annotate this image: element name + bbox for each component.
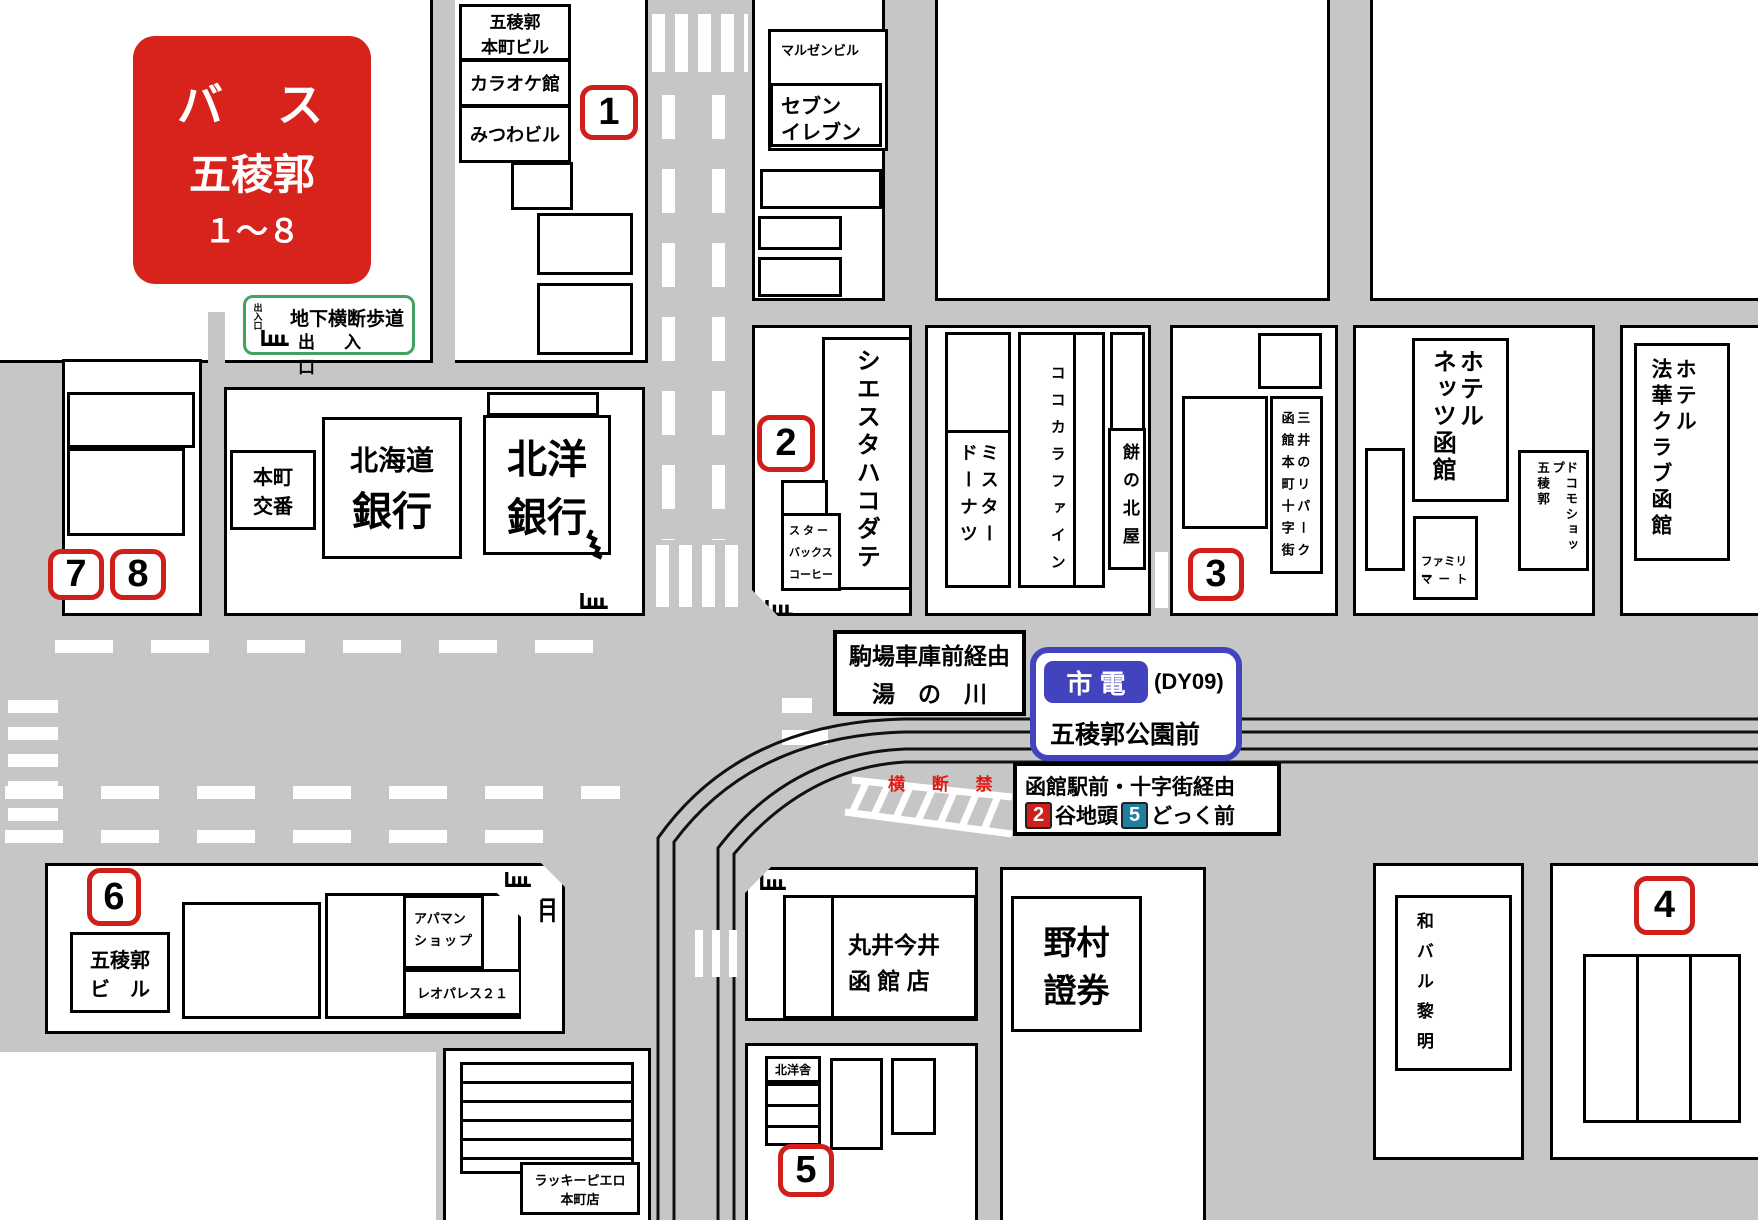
block-bottom-left <box>0 1052 436 1220</box>
building-apaman-shop: アパマン ショップ <box>403 895 484 969</box>
tram-stop-name: 五稜郭公園前 <box>1050 715 1200 751</box>
dest-dokumae: どっく前 <box>1151 800 1235 830</box>
block-hokuyosha: 北洋舎 <box>745 1043 978 1220</box>
building-goryokaku-honcho: 五稜郭 本町ビル <box>459 4 571 61</box>
yunokawa-direction-sign: 駒場車庫前経由 湯 の 川 <box>833 630 1026 716</box>
hakodate-direction-sign: 函館駅前・十字街経由 2 谷地頭 5 どっく前 <box>1013 762 1281 836</box>
building-unlabeled <box>1258 333 1322 389</box>
yunokawa-line1: 駒場車庫前経由 <box>849 637 1010 671</box>
block-banks: 本町 交番 北海道 銀行 北洋 銀行 <box>224 387 645 616</box>
tram-badge: 市 電 <box>1044 661 1148 703</box>
building-unlabeled <box>487 392 599 416</box>
maruzen-label: マルゼンビル <box>781 40 859 59</box>
bus-stop-7: 7 <box>48 549 104 600</box>
crosswalk-south-road <box>695 930 745 977</box>
block-maruzen: マルゼンビル セブン イレブン <box>752 0 885 301</box>
building-unlabeled <box>67 392 195 448</box>
route-2-badge: 2 <box>1025 802 1052 829</box>
building-mitsuwa: みつわビル <box>459 105 571 163</box>
bus-stop-6: 6 <box>87 868 141 926</box>
entrance-gate-icon <box>540 898 555 924</box>
tram-stop-sign: 市 電 (DY09) 五稜郭公園前 <box>1030 647 1242 761</box>
building-familymart: ファミリー マート <box>1413 516 1478 600</box>
block-wabaru: 和バル黎明 <box>1373 863 1524 1160</box>
building-rows <box>765 1083 821 1146</box>
building-cocokara-fine: ココカラファイン <box>1018 332 1076 588</box>
building-docomo-shop: ドコモショップ 五稜郭 <box>1518 450 1589 571</box>
bus-sign-line2: 五稜郭 <box>189 141 315 202</box>
hakodate-line1: 函館駅前・十字街経由 <box>1025 771 1235 801</box>
building-hotel-nets: ホテル ネッツ函館 <box>1412 338 1509 502</box>
building-unlabeled <box>1073 332 1105 588</box>
building-mister-donut: ミスター ドーナツ <box>945 430 1011 588</box>
building-hokuyosha: 北洋舎 <box>765 1056 821 1083</box>
stairs-icon <box>760 875 786 890</box>
building-seven-eleven: セブン イレブン <box>770 83 882 147</box>
block-northeast-b <box>1370 0 1758 301</box>
marui-divider <box>831 898 834 1016</box>
building-apaman-outer: アパマン ショップ レオパレス２１ <box>325 893 521 1019</box>
building-hotel-hokke-club: ホテル 法華クラブ函館 <box>1634 343 1730 561</box>
block-hotel-hokke: ホテル 法華クラブ函館 <box>1620 325 1758 616</box>
building-maruzen: マルゼンビル セブン イレブン <box>768 29 888 151</box>
bay-divider <box>1689 957 1692 1120</box>
bus-stop-8: 8 <box>110 549 166 600</box>
building-leopalace21: レオパレス２１ <box>403 969 522 1016</box>
yunokawa-line2: 湯 の 川 <box>872 675 987 709</box>
bus-area-sign: バ ス 五稜郭 １～８ <box>133 36 371 284</box>
block-lucky-pierrot: ラッキーピエロ 本町店 <box>443 1048 651 1220</box>
bus-sign-line1: バ ス <box>177 69 327 135</box>
building-unlabeled <box>891 1058 936 1135</box>
underpass-entrance-sign: 出入口 地下横断歩道 出 入 口 <box>243 295 415 355</box>
block-northwest: バ ス 五稜郭 １～８ 出入口 地下横断歩道 出 入 口 <box>0 0 433 363</box>
side-street-notch <box>208 312 225 364</box>
bus-stop-5: 5 <box>778 1144 834 1197</box>
hakodate-line2: 2 谷地頭 5 どっく前 <box>1025 800 1235 830</box>
route-5-badge: 5 <box>1121 802 1148 829</box>
building-hokkaido-bank: 北海道 銀行 <box>322 417 462 559</box>
building-three-bay <box>1583 954 1741 1123</box>
building-mochi-no-kitaya: 餅の北屋 <box>1108 428 1146 570</box>
block-marui-imai: 丸井今井 函 館 店 <box>745 867 978 1021</box>
building-unlabeled <box>1110 332 1145 433</box>
underpass-sign-subtitle: 出 入 口 <box>298 328 412 378</box>
building-unlabeled <box>758 216 842 250</box>
parking-mitsui-repark: 三井のリパーク 函館本町十字街 <box>1270 396 1323 574</box>
block-hotel-nets: ホテル ネッツ函館 ファミリー マート ドコモショップ 五稜郭 <box>1353 325 1595 616</box>
bus-stop-3: 3 <box>1188 548 1244 601</box>
building-unlabeled <box>760 169 882 209</box>
underpass-sign-title: 地下横断歩道 <box>290 304 404 331</box>
dest-yachigashira: 谷地頭 <box>1055 800 1118 830</box>
building-unlabeled <box>67 448 185 536</box>
stairs-icon <box>580 593 608 609</box>
goryokaku-bus-map: バ ス 五稜郭 １～８ 出入口 地下横断歩道 出 入 口 五稜郭 本町ビル カラ… <box>0 0 1758 1220</box>
building-unlabeled <box>758 257 842 297</box>
building-unlabeled <box>182 902 321 1019</box>
bus-stop-4: 4 <box>1634 876 1695 935</box>
building-unlabeled <box>1365 448 1405 571</box>
tram-code: (DY09) <box>1154 669 1224 695</box>
building-karaoke-kan: カラオケ館 <box>459 59 571 107</box>
building-marui-imai: 丸井今井 函 館 店 <box>783 895 977 1019</box>
bus-sign-line3: １～８ <box>204 206 300 252</box>
building-lucky-pierrot: ラッキーピエロ 本町店 <box>520 1162 640 1215</box>
block-honcho-stack: 五稜郭 本町ビル カラオケ館 みつわビル <box>455 0 648 363</box>
underpass-sign-side-label: 出入口 <box>250 303 263 330</box>
building-unlabeled <box>830 1058 883 1150</box>
building-honcho-koban: 本町 交番 <box>230 450 316 530</box>
siesta-label: シエスタハコダテ <box>851 348 880 586</box>
building-unlabeled <box>537 283 633 355</box>
building-starbucks: スター バックス コーヒー <box>781 513 841 591</box>
building-nomura-securities: 野村 證券 <box>1011 896 1142 1032</box>
building-unlabeled <box>537 213 633 275</box>
bus-stop-1: 1 <box>580 85 638 140</box>
bus-stop-2: 2 <box>757 415 815 472</box>
stairs-icon <box>260 330 290 346</box>
building-unlabeled <box>945 332 1011 435</box>
block-northeast-a <box>935 0 1330 301</box>
building-goryokaku-bldg: 五稜郭 ビ ル <box>70 932 170 1013</box>
building-unlabeled <box>1182 396 1268 529</box>
building-striped <box>460 1062 634 1174</box>
building-unlabeled <box>511 162 573 210</box>
block-nomura: 野村 證券 <box>1000 867 1206 1220</box>
building-wabaru-reimei: 和バル黎明 <box>1395 895 1512 1071</box>
block-donut: ミスター ドーナツ ココカラファイン 餅の北屋 <box>925 325 1151 616</box>
bay-divider <box>1636 957 1639 1120</box>
stairs-icon <box>505 872 531 887</box>
